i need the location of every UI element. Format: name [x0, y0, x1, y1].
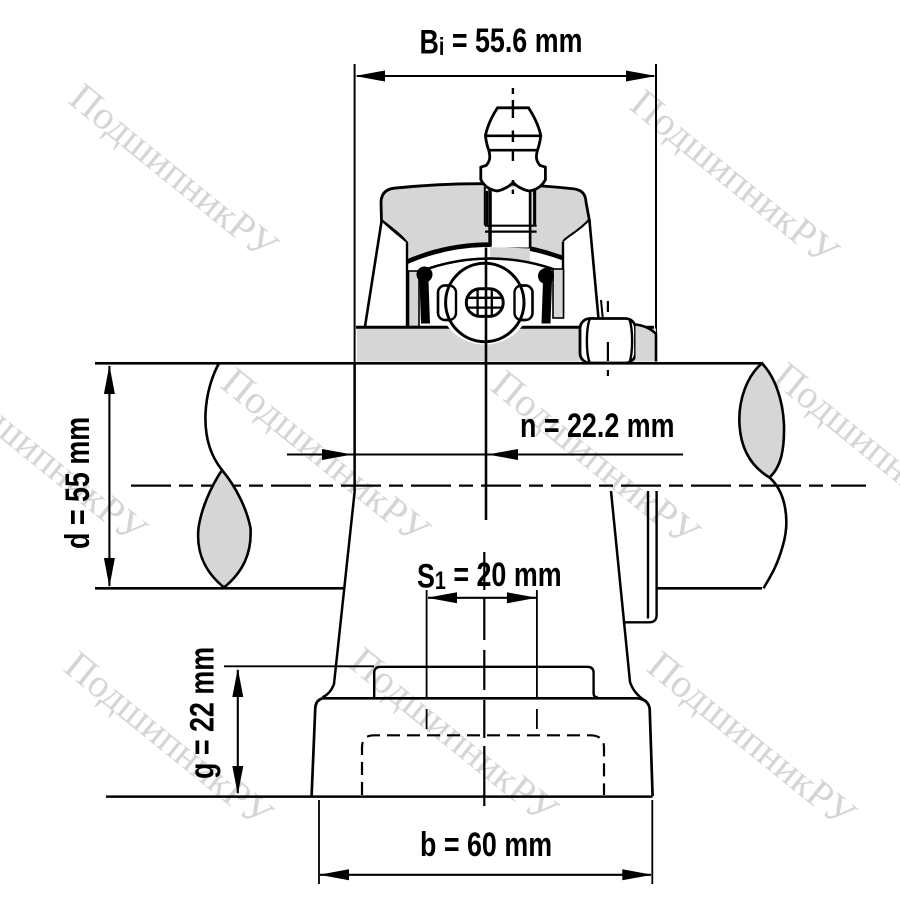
svg-text:g = 22 mm: g = 22 mm	[184, 647, 222, 779]
svg-text:Bi = 55.6 mm: Bi = 55.6 mm	[420, 22, 583, 61]
svg-text:n = 22.2 mm: n = 22.2 mm	[520, 407, 674, 445]
svg-text:b = 60 mm: b = 60 mm	[420, 826, 552, 864]
svg-text:d = 55 mm: d = 55 mm	[59, 417, 97, 549]
